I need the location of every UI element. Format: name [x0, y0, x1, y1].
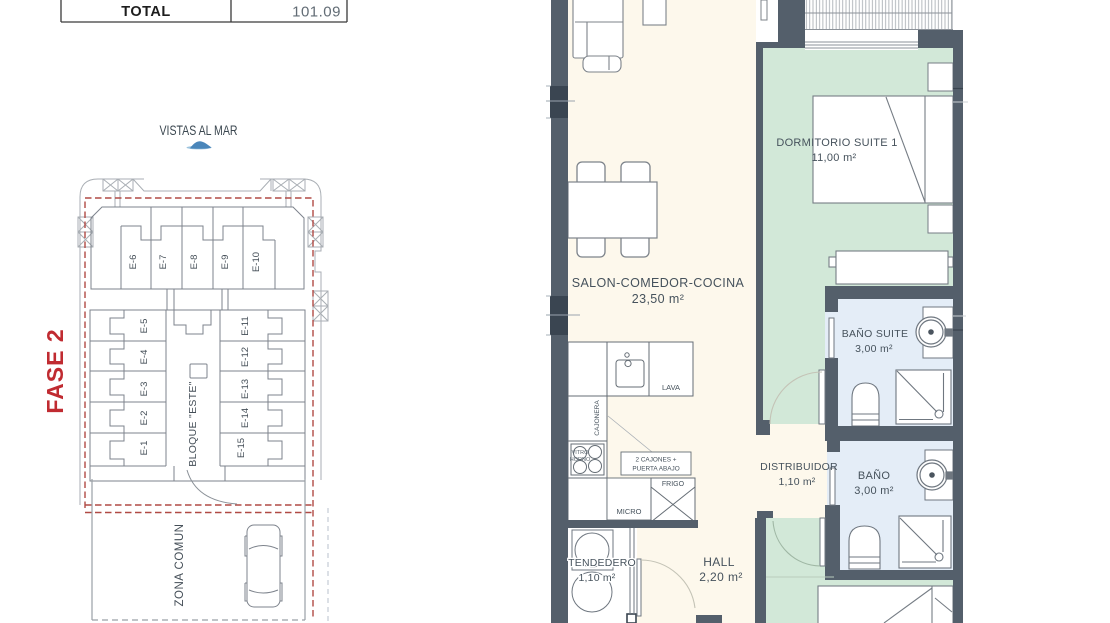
- svg-text:HORNO: HORNO: [570, 457, 591, 463]
- svg-text:3,00 m²: 3,00 m²: [854, 485, 893, 497]
- svg-text:E-10: E-10: [251, 252, 262, 272]
- svg-text:FRIGO: FRIGO: [662, 481, 685, 488]
- svg-text:E-15: E-15: [236, 438, 247, 458]
- svg-text:1,10 m²: 1,10 m²: [579, 572, 616, 584]
- svg-text:3,00 m²: 3,00 m²: [855, 343, 893, 355]
- svg-text:DISTRIBUIDOR: DISTRIBUIDOR: [760, 461, 838, 473]
- svg-text:ZONA COMUN: ZONA COMUN: [174, 524, 186, 607]
- svg-text:E-5: E-5: [139, 319, 150, 334]
- svg-text:23,50 m²: 23,50 m²: [632, 292, 685, 306]
- svg-text:BAÑO: BAÑO: [858, 469, 891, 482]
- svg-text:VITRO: VITRO: [572, 450, 590, 456]
- svg-text:DORMITORIO SUITE 1: DORMITORIO SUITE 1: [776, 137, 897, 149]
- svg-text:BAÑO SUITE: BAÑO SUITE: [842, 327, 909, 340]
- svg-text:E-9: E-9: [220, 255, 231, 270]
- svg-text:CAJONERA: CAJONERA: [594, 400, 601, 436]
- svg-text:E-3: E-3: [139, 382, 150, 397]
- svg-text:E-7: E-7: [158, 255, 169, 270]
- svg-text:E-11: E-11: [240, 316, 251, 335]
- svg-text:E-12: E-12: [240, 347, 251, 367]
- svg-text:2 CAJONES +: 2 CAJONES +: [635, 457, 676, 464]
- svg-text:SALON-COMEDOR-COCINA: SALON-COMEDOR-COCINA: [572, 276, 745, 290]
- svg-text:E-6: E-6: [128, 255, 139, 270]
- svg-text:E-2: E-2: [139, 411, 150, 426]
- svg-text:BLOQUE "ESTE": BLOQUE "ESTE": [187, 381, 199, 466]
- svg-text:E-4: E-4: [139, 350, 150, 365]
- svg-text:TOTAL: TOTAL: [121, 4, 170, 20]
- svg-text:E-13: E-13: [240, 379, 251, 399]
- svg-text:VISTAS AL MAR: VISTAS AL MAR: [160, 123, 238, 138]
- svg-text:TENDEDERO: TENDEDERO: [568, 557, 636, 569]
- svg-text:101.09: 101.09: [292, 4, 341, 21]
- svg-text:E-1: E-1: [139, 441, 150, 456]
- svg-text:1,10 m²: 1,10 m²: [779, 476, 816, 488]
- svg-text:2,20 m²: 2,20 m²: [699, 570, 742, 584]
- svg-text:E-14: E-14: [240, 408, 251, 428]
- svg-text:LAVA: LAVA: [662, 383, 680, 392]
- svg-text:FASE 2: FASE 2: [42, 328, 68, 413]
- svg-text:MICRO: MICRO: [617, 507, 642, 516]
- svg-text:11,00 m²: 11,00 m²: [812, 152, 857, 164]
- svg-text:E-8: E-8: [189, 255, 200, 270]
- svg-text:PUERTA ABAJO: PUERTA ABAJO: [632, 466, 679, 473]
- svg-text:HALL: HALL: [703, 555, 735, 569]
